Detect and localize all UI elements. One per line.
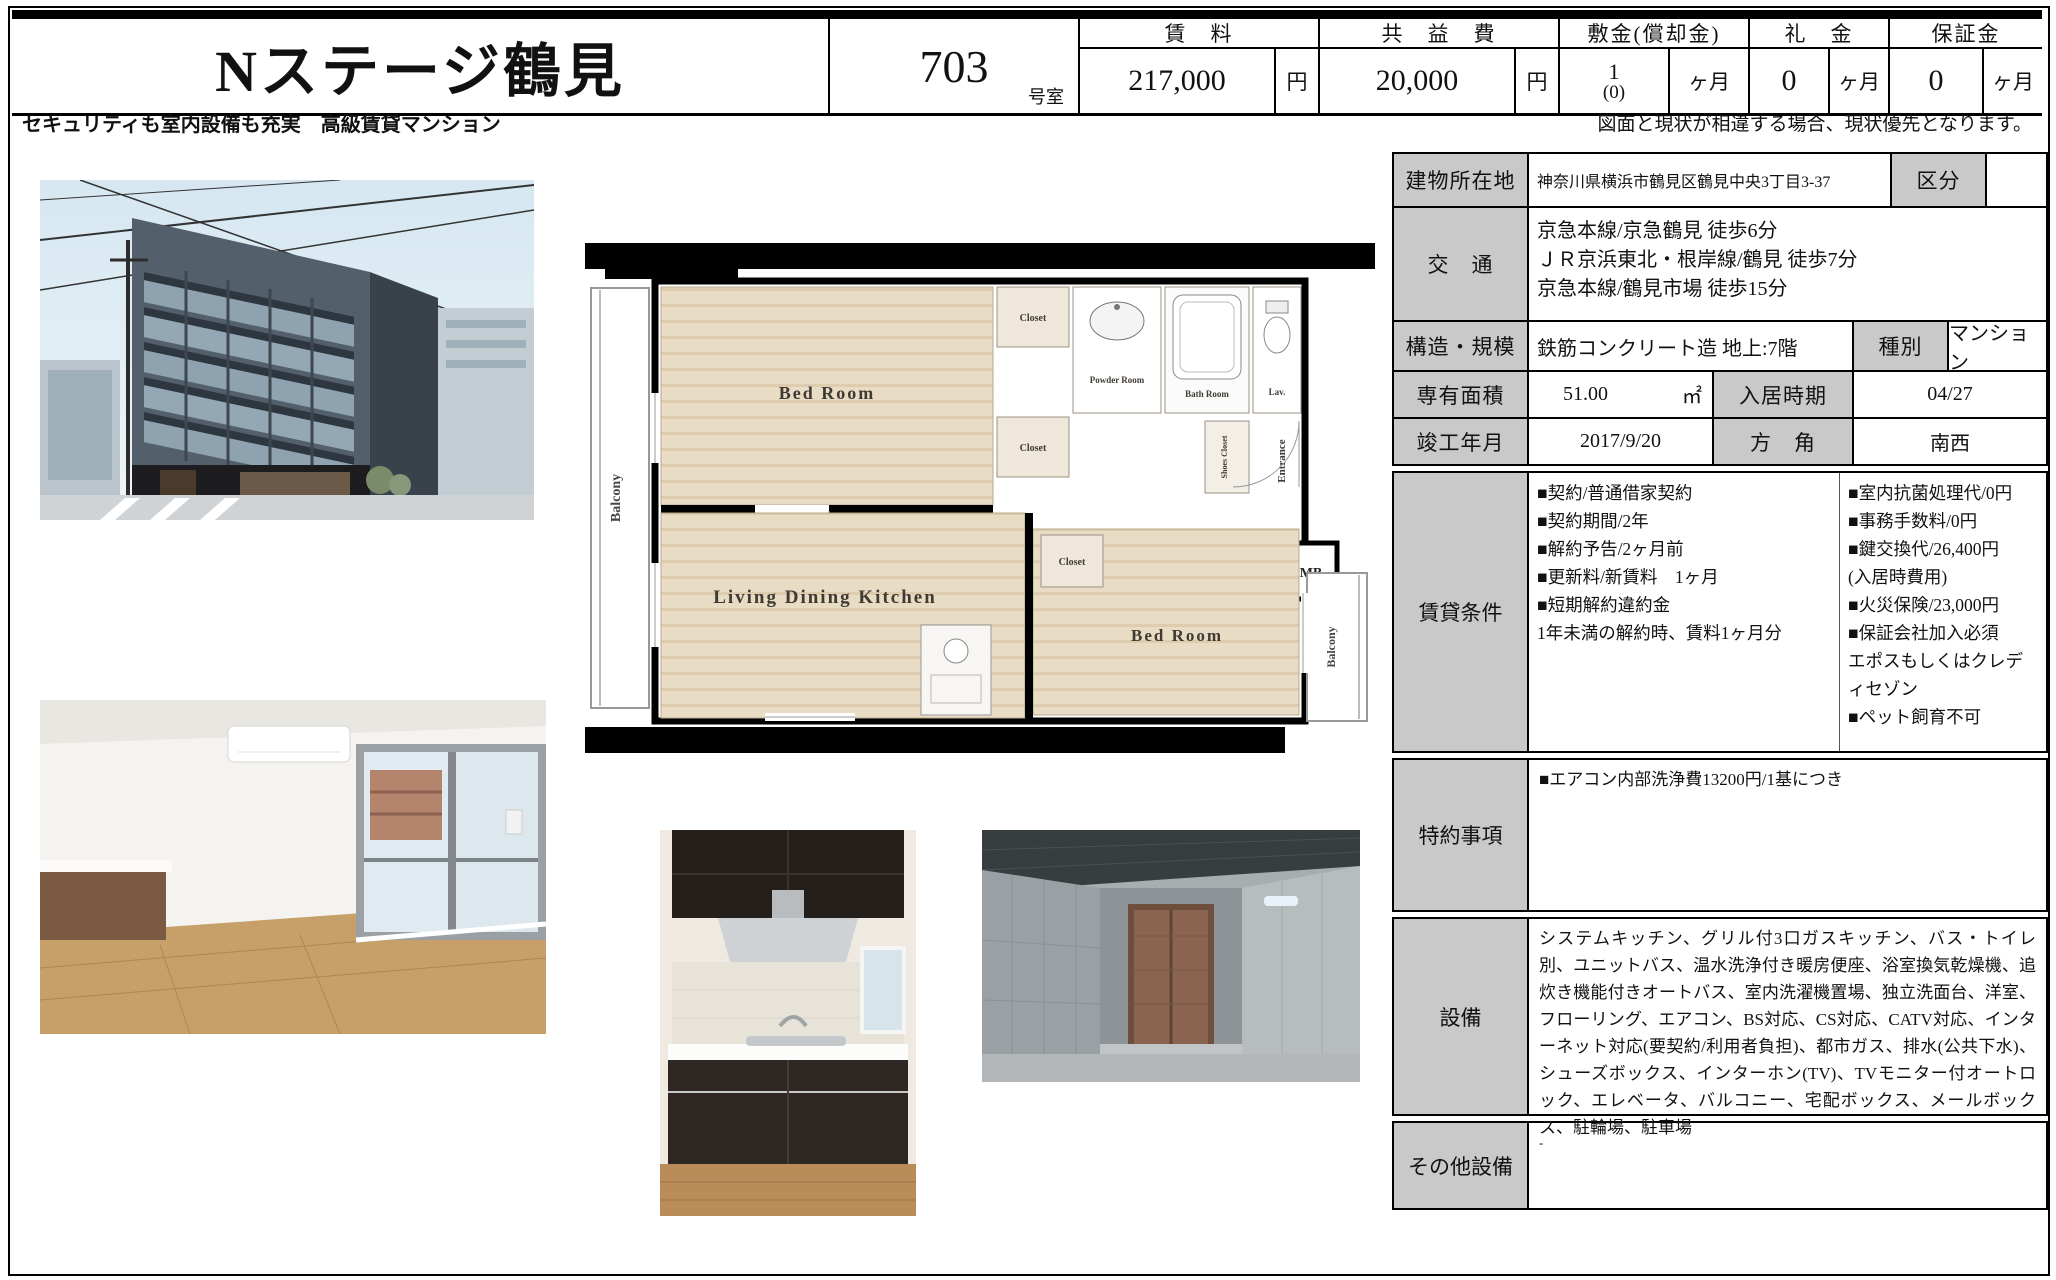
access-label: 交 通 <box>1394 208 1529 320</box>
equipment-text: システムキッチン、グリル付3口ガスキッチン、バス・トイレ別、ユニットバス、温水洗… <box>1529 919 2046 1114</box>
guarantee-label: 保証金 <box>1890 19 2042 49</box>
structure-value: 鉄筋コンクリート造 地上:7階 <box>1529 322 1854 370</box>
movein-value: 04/27 <box>1854 372 2046 417</box>
address-label: 建物所在地 <box>1394 154 1529 206</box>
building-exterior-photo <box>40 180 534 520</box>
kitchen-photo <box>660 830 916 1216</box>
other-equipment-label: その他設備 <box>1394 1123 1529 1208</box>
common-fee-label: 共 益 費 <box>1320 19 1558 49</box>
ldk-label: Living Dining Kitchen <box>713 587 937 608</box>
building-type-value: マンション <box>1949 322 2046 370</box>
key-money-label: 礼 金 <box>1750 19 1888 49</box>
detail-panel: 建物所在地 神奈川県横浜市鶴見区鶴見中央3丁目3-37 区分 交 通 京急本線/… <box>1392 152 2048 1215</box>
closet-3-label: Closet <box>1059 557 1086 568</box>
deposit-value: 1 (0) <box>1560 49 1668 113</box>
guarantee-value: 0 <box>1890 49 1982 113</box>
room-suffix: 号室 <box>1028 83 1064 109</box>
access-value: 京急本線/京急鶴見 徒歩6分 ＪＲ京浜東北・根岸線/鶴見 徒歩7分 京急本線/鶴… <box>1529 208 2046 320</box>
property-sheet: Nステージ鶴見 703 号室 賃 料 217,000 円 共 益 費 20,00… <box>8 6 2050 1276</box>
deposit-months: 1 <box>1609 61 1620 83</box>
completion-value: 2017/9/20 <box>1529 419 1714 464</box>
category-label: 区分 <box>1892 154 1987 206</box>
balcony-left-label: Balcony <box>609 474 624 522</box>
common-fee-unit: 円 <box>1514 49 1558 113</box>
area-value: 51.00 <box>1563 383 1608 406</box>
lavatory-label: Lav. <box>1269 387 1286 397</box>
direction-label: 方 角 <box>1714 419 1854 464</box>
property-name-cell: Nステージ鶴見 <box>12 19 830 113</box>
closet-2-label: Closet <box>1020 443 1047 454</box>
common-fee-value: 20,000 <box>1320 49 1514 113</box>
basic-info-table: 建物所在地 神奈川県横浜市鶴見区鶴見中央3丁目3-37 区分 交 通 京急本線/… <box>1392 152 2048 466</box>
entrance-photo <box>982 830 1360 1082</box>
rent-unit: 円 <box>1274 49 1318 113</box>
address-value: 神奈川県横浜市鶴見区鶴見中央3丁目3-37 <box>1529 154 1892 206</box>
special-terms-label: 特約事項 <box>1394 760 1529 910</box>
shoes-closet-label: Shoes Closet <box>1220 435 1229 478</box>
disclaimer-text: 図面と現状が相違する場合、現状優先となります。 <box>1597 109 2032 136</box>
bedroom1-label: Bed Room <box>779 383 876 403</box>
powder-room-label: Powder Room <box>1090 375 1145 385</box>
lease-terms-table: 賃貸条件 ■契約/普通借家契約 ■契約期間/2年 ■解約予告/2ヶ月前 ■更新料… <box>1392 471 2048 753</box>
equipment-table: 設備 システムキッチン、グリル付3口ガスキッチン、バス・トイレ別、ユニットバス、… <box>1392 917 2048 1116</box>
area-unit: ㎡ <box>1682 380 1702 409</box>
lease-terms-left: ■契約/普通借家契約 ■契約期間/2年 ■解約予告/2ヶ月前 ■更新料/新賃料 … <box>1529 473 1840 751</box>
rent-value: 217,000 <box>1080 49 1274 113</box>
deposit-column: 敷金(償却金) 1 (0) ヶ月 <box>1560 19 1750 113</box>
rent-label: 賃 料 <box>1080 19 1318 49</box>
key-money-column: 礼 金 0 ヶ月 <box>1750 19 1890 113</box>
floor-plan: Balcony Bed Room Living Dining Kitchen C… <box>585 243 1375 753</box>
guarantee-column: 保証金 0 ヶ月 <box>1890 19 2042 113</box>
closet-1-label: Closet <box>1020 313 1047 324</box>
subheader: セキュリティも室内設備も充実 高級賃貸マンション 図面と現状が相違する場合、現状… <box>12 107 2042 137</box>
room-number: 703 <box>920 40 989 93</box>
special-terms-table: 特約事項 ■エアコン内部洗浄費13200円/1基につき <box>1392 758 2048 912</box>
other-equipment-table: その他設備 - <box>1392 1121 2048 1210</box>
deposit-unit: ヶ月 <box>1668 49 1748 113</box>
direction-value: 南西 <box>1854 419 2046 464</box>
category-value <box>1987 154 2046 206</box>
building-type-label: 種別 <box>1854 322 1949 370</box>
bath-room-label: Bath Room <box>1185 389 1229 399</box>
completion-label: 竣工年月 <box>1394 419 1529 464</box>
living-room-photo <box>40 700 546 1034</box>
deposit-label: 敷金(償却金) <box>1560 19 1748 49</box>
area-value-cell: 51.00 ㎡ <box>1529 372 1714 417</box>
movein-label: 入居時期 <box>1714 372 1854 417</box>
other-equipment-text: - <box>1529 1123 2046 1208</box>
structure-label: 構造・規模 <box>1394 322 1529 370</box>
lease-terms-label: 賃貸条件 <box>1394 473 1529 751</box>
key-money-unit: ヶ月 <box>1828 49 1888 113</box>
key-money-value: 0 <box>1750 49 1828 113</box>
deposit-amortized: (0) <box>1603 83 1625 102</box>
catch-copy: セキュリティも室内設備も充実 高級賃貸マンション <box>22 108 501 137</box>
page-title: Nステージ鶴見 <box>215 24 625 108</box>
special-terms-text: ■エアコン内部洗浄費13200円/1基につき <box>1529 760 2046 799</box>
guarantee-unit: ヶ月 <box>1982 49 2042 113</box>
area-label: 専有面積 <box>1394 372 1529 417</box>
bedroom2-label: Bed Room <box>1131 626 1223 645</box>
rent-column: 賃 料 217,000 円 <box>1080 19 1320 113</box>
plan-bottom-wall <box>585 727 1285 753</box>
plan-top-wall <box>585 243 1375 269</box>
lease-terms-right: ■室内抗菌処理代/0円 ■事務手数料/0円 ■鍵交換代/26,400円 (入居時… <box>1840 473 2046 751</box>
header-table: Nステージ鶴見 703 号室 賃 料 217,000 円 共 益 費 20,00… <box>12 10 2042 116</box>
room-number-cell: 703 号室 <box>830 19 1080 113</box>
common-fee-column: 共 益 費 20,000 円 <box>1320 19 1560 113</box>
balcony-right-label: Balcony <box>1324 626 1338 667</box>
equipment-label: 設備 <box>1394 919 1529 1114</box>
